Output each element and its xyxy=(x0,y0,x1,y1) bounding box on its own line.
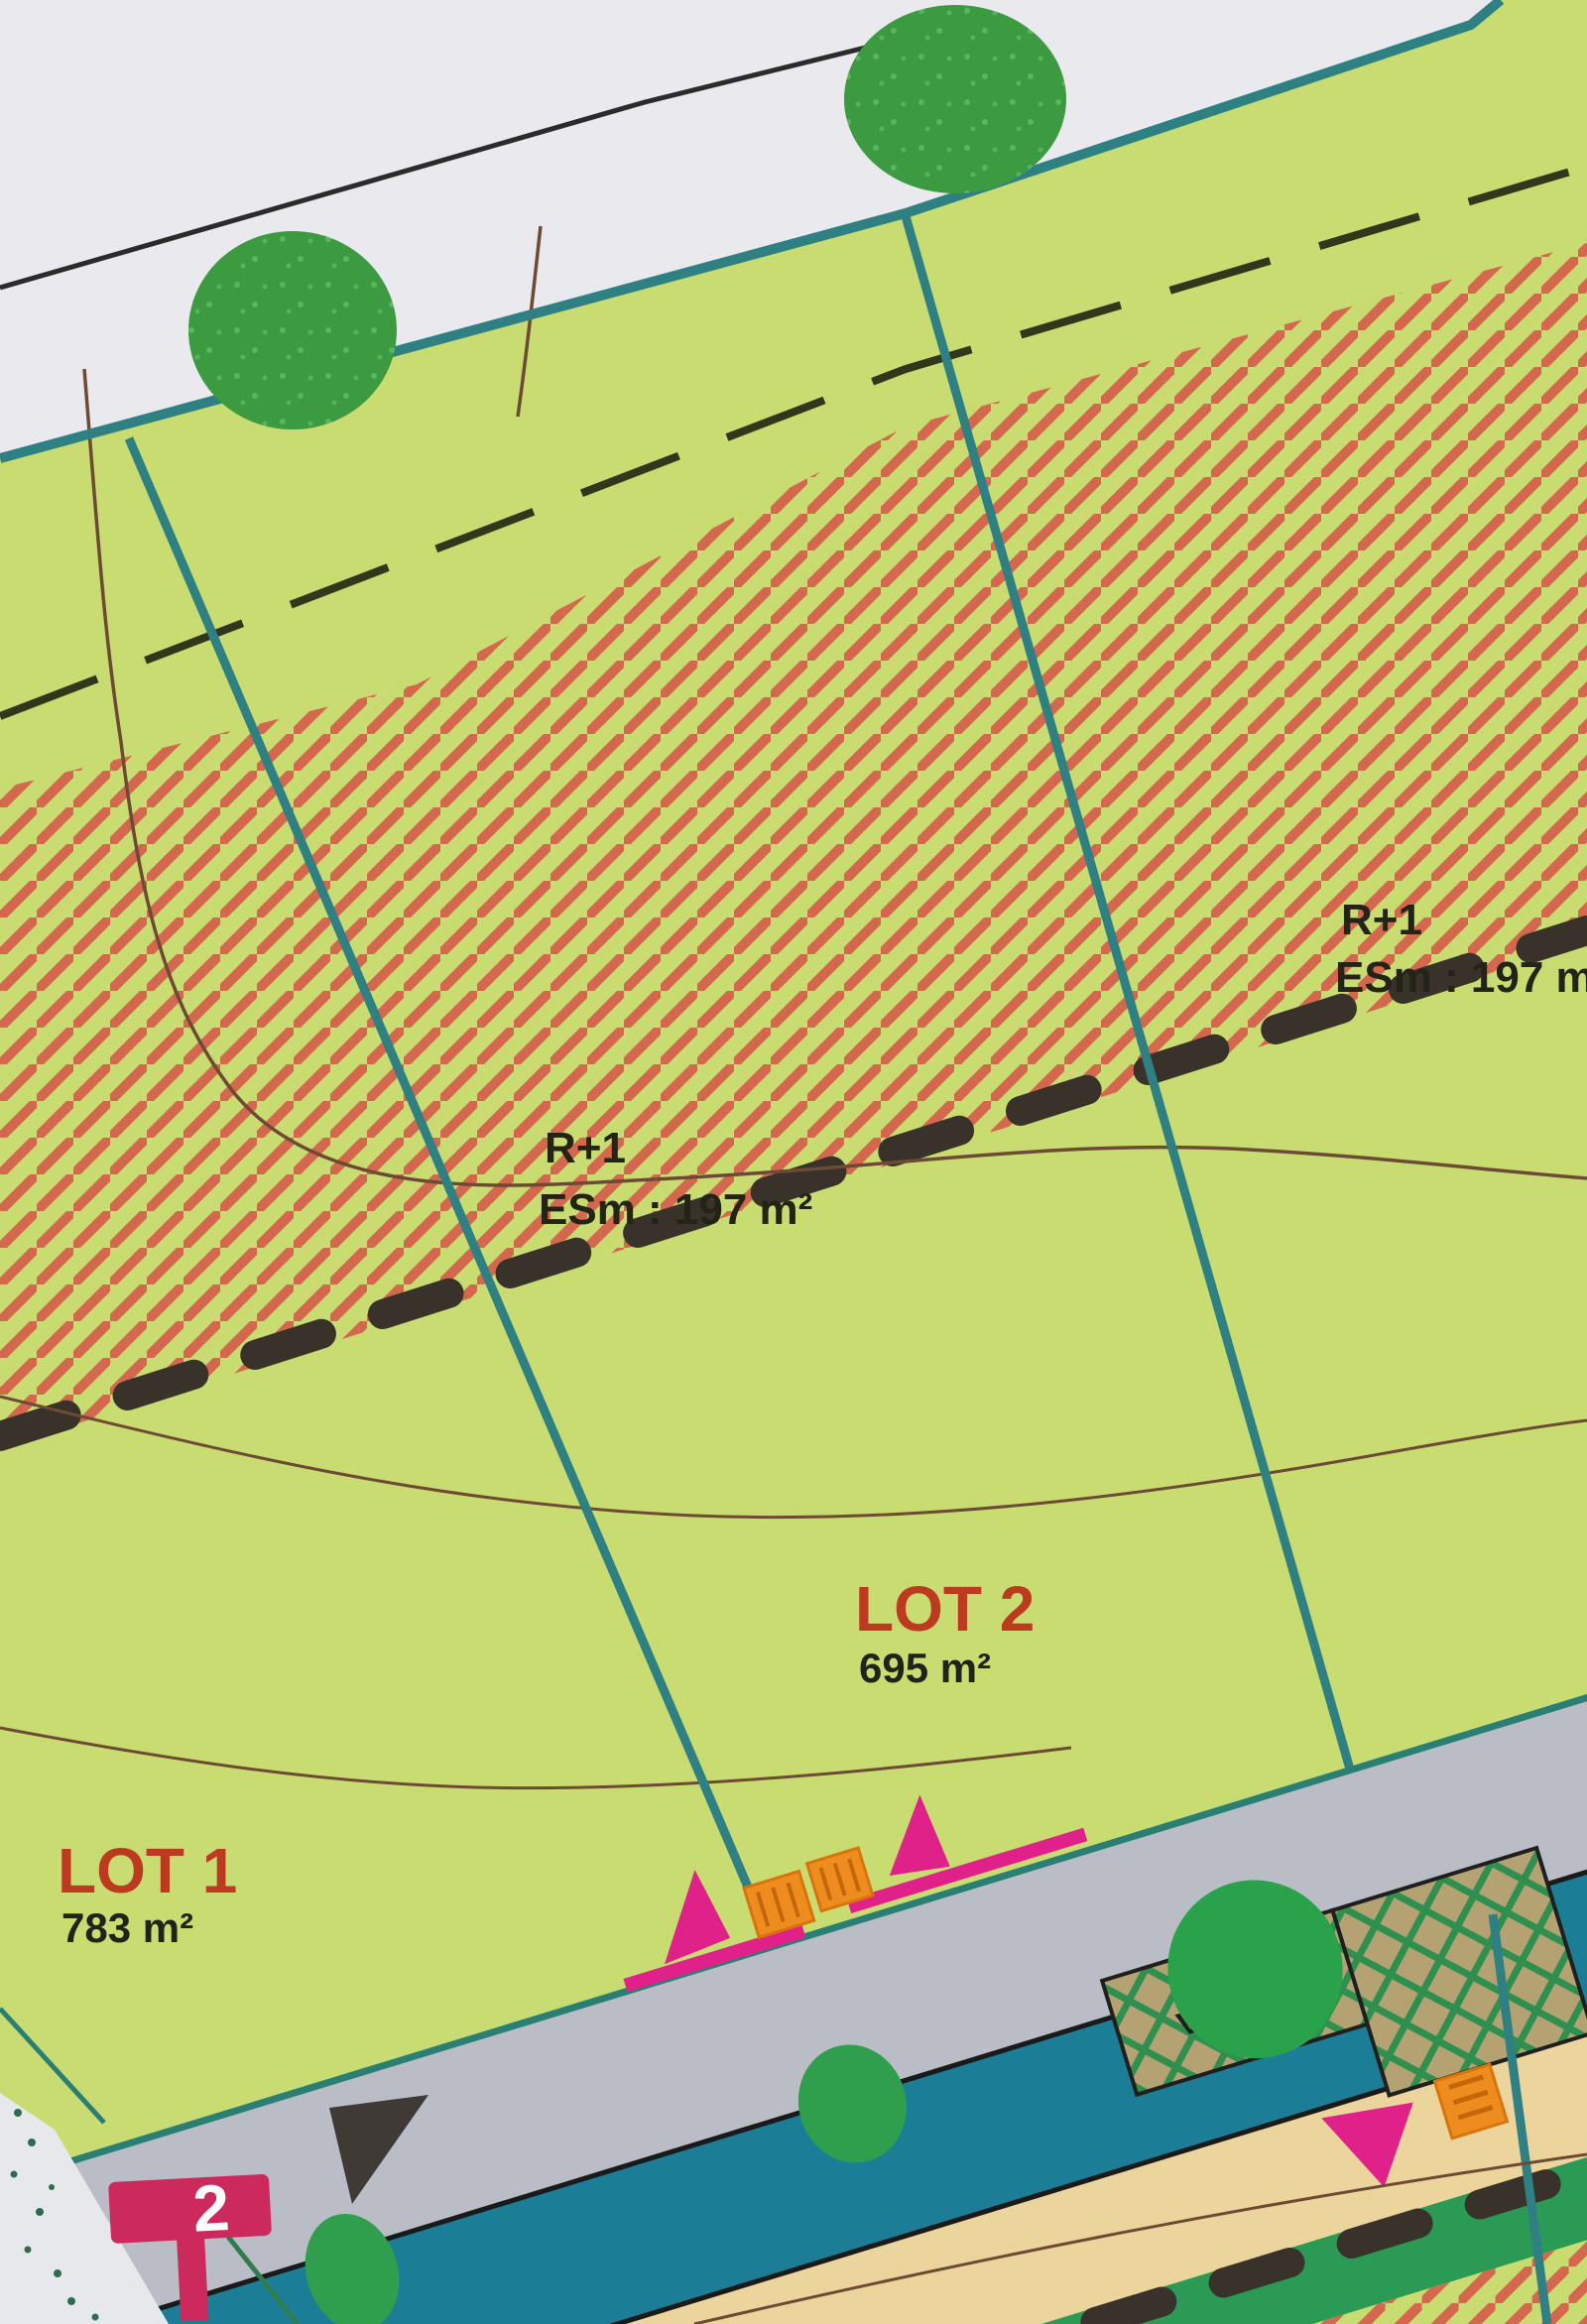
building-label-surface: ESm : 197 m² xyxy=(539,1185,812,1234)
building-label-surface: ESm : 197 m² xyxy=(1335,953,1587,1002)
lot2-title: LOT 2 xyxy=(855,1573,1035,1645)
lot-number-sign-text: 2 xyxy=(191,2170,232,2246)
tree-symbol xyxy=(844,5,1066,193)
lot1-title: LOT 1 xyxy=(58,1835,237,1906)
lot1-area: 783 m² xyxy=(61,1904,193,1951)
building-label-floors: R+1 xyxy=(1341,896,1422,944)
sign-plate xyxy=(108,2174,272,2244)
site-plan-svg: R+1 ESm : 197 m² R+1 ESm : 197 m² LOT 2 … xyxy=(0,0,1587,2324)
tree-symbol xyxy=(188,231,397,429)
lot2-area: 695 m² xyxy=(859,1645,991,1691)
scanned-site-plan: R+1 ESm : 197 m² R+1 ESm : 197 m² LOT 2 … xyxy=(0,0,1587,2324)
building-label-floors: R+1 xyxy=(545,1124,626,1172)
